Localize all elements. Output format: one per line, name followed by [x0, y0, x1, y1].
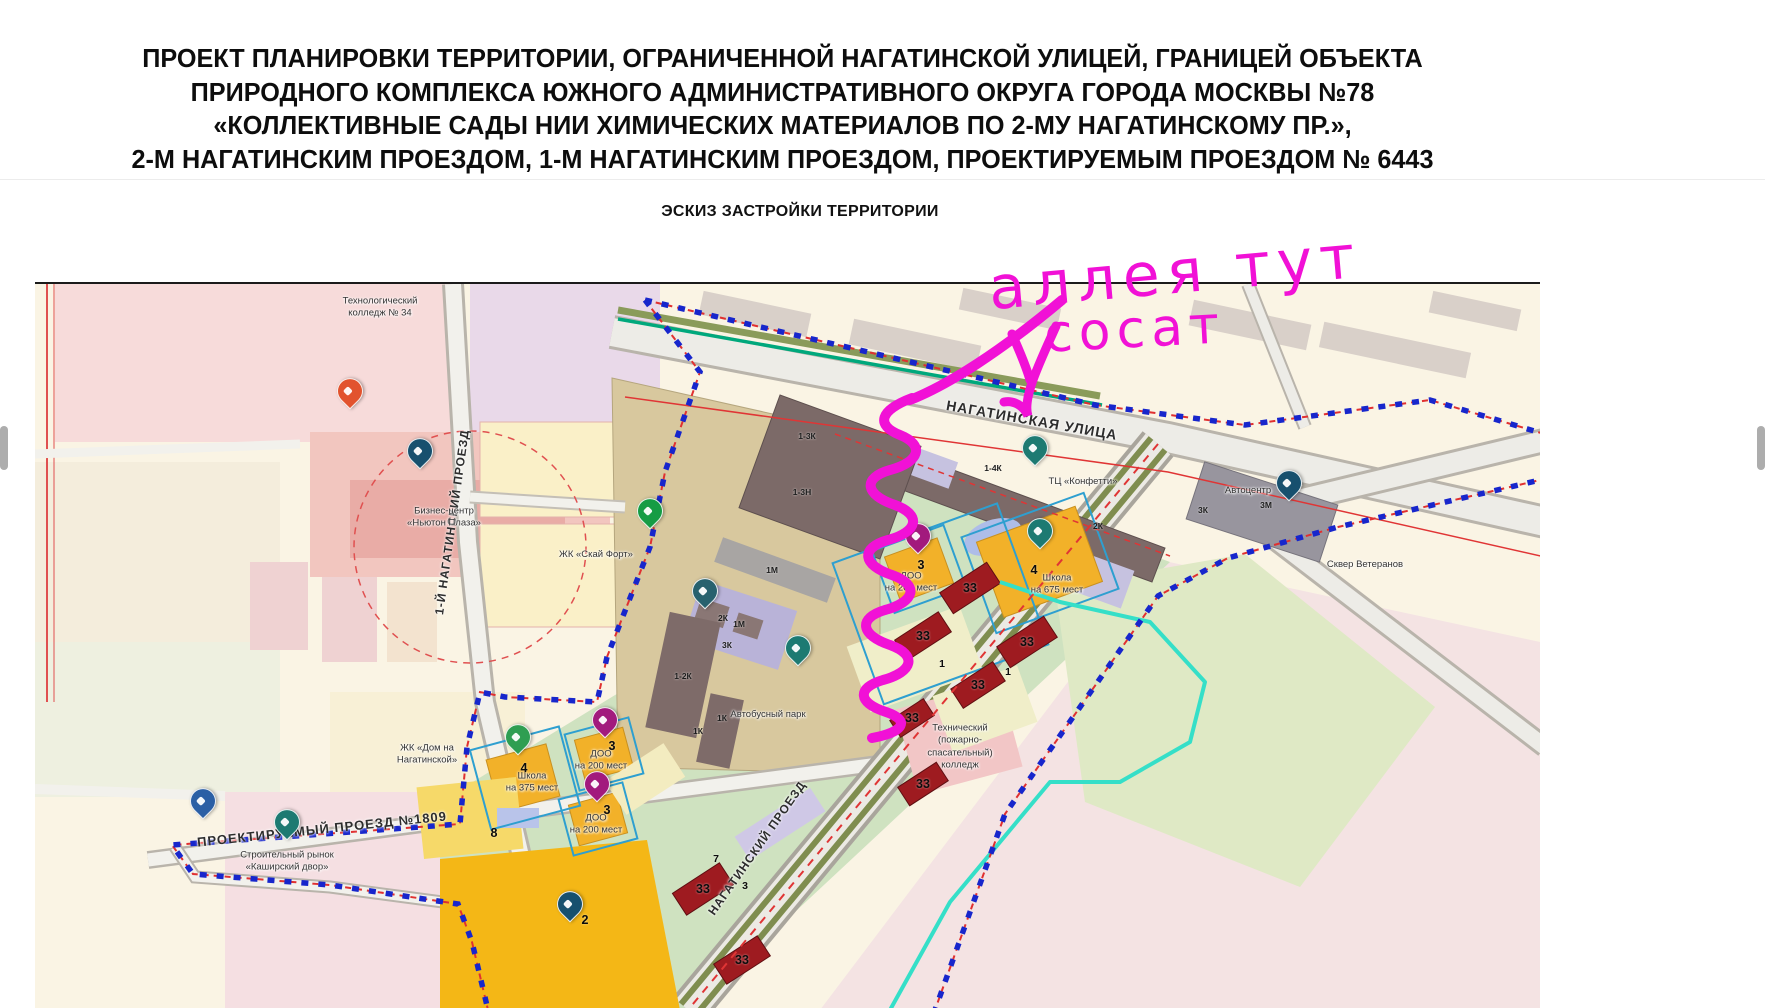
label-autocenter: Автоцентр	[1225, 485, 1271, 497]
page-title: ПРОЕКТ ПЛАНИРОВКИ ТЕРРИТОРИИ, ОГРАНИЧЕНН…	[23, 0, 1541, 176]
label-tech-college-34: Технологический колледж № 34	[343, 296, 418, 321]
code-label-1-4К: 1-4К	[984, 463, 1001, 473]
map-labels-layer: НАГАТИНСКАЯ УЛИЦА1-Й НАГАТИНСКИЙ ПРОЕЗДП…	[35, 284, 1540, 1008]
car-center-pin	[1271, 465, 1308, 502]
code-label-1-3К: 1-3К	[798, 431, 815, 441]
label-school-375: Школа на 375 мест	[506, 771, 559, 796]
right-scroll-pill[interactable]	[1757, 426, 1765, 470]
num-label-33: 33	[971, 678, 985, 692]
num-label-33: 33	[696, 882, 710, 896]
title-line-2: ПРИРОДНОГО КОМПЛЕКСА ЮЖНОГО АДМИНИСТРАТИ…	[23, 76, 1541, 110]
doo-a-pin	[587, 702, 624, 739]
code-label-1М: 1М	[733, 619, 745, 629]
header-divider	[0, 179, 1765, 180]
code-label-1К: 1К	[717, 713, 727, 723]
market-pin	[269, 804, 306, 841]
num-label-3: 3	[604, 803, 611, 817]
label-zhk-dom-na-nagatinskoy: ЖК «Дом на Нагатинской»	[397, 743, 457, 768]
label-tech-fire-college: Технический (пожарно- спасательный) колл…	[927, 722, 992, 771]
num-label-8: 8	[491, 826, 498, 840]
label-zhk-sky-fort: ЖК «Скай Форт»	[559, 549, 633, 561]
label-bus-park: Автобусный парк	[730, 709, 805, 721]
num-label sm-3: 3	[742, 880, 748, 892]
num-label sm-7: 7	[713, 853, 719, 865]
map-subtitle: ЭСКИЗ ЗАСТРОЙКИ ТЕРРИТОРИИ	[0, 203, 1600, 221]
title-line-4: 2-М НАГАТИНСКИМ ПРОЕЗДОМ, 1-М НАГАТИНСКИ…	[23, 143, 1541, 177]
code-label-1-3Н: 1-3Н	[793, 487, 811, 497]
label-business-center: Бизнес-центр «Ньютон Плаза»	[407, 506, 481, 531]
code-label-2К: 2К	[718, 613, 728, 623]
num-label-33: 33	[905, 711, 919, 725]
code-label-1М: 1М	[766, 565, 778, 575]
label-kashirsky-dvor: Строительный рынок «Каширский двор»	[240, 850, 334, 875]
transport-pin	[185, 783, 222, 820]
code-label-3М: 3М	[1260, 500, 1272, 510]
num-label sm-1: 1	[939, 658, 945, 670]
street-proektiruemy-proezd-1809: ПРОЕКТИРУЕМЫЙ ПРОЕЗД №1809	[196, 808, 447, 849]
school-375-pin	[500, 719, 537, 756]
num-label-33: 33	[916, 629, 930, 643]
planning-document-page: ПРОЕКТ ПЛАНИРОВКИ ТЕРРИТОРИИ, ОГРАНИЧЕНН…	[0, 0, 1765, 1008]
street-1st-nagatinsky-proezd: 1-Й НАГАТИНСКИЙ ПРОЕЗД	[432, 428, 472, 615]
num-label sm-1: 1	[1005, 666, 1011, 678]
school-675-pin	[1022, 513, 1059, 550]
code-label-1-2К: 1-2К	[674, 671, 691, 681]
num-label-4: 4	[521, 761, 528, 775]
num-label-33: 33	[963, 581, 977, 595]
label-doo-200-a: ДОО на 200 мест	[885, 571, 938, 596]
plot-2-pin	[552, 886, 589, 923]
num-label-33: 33	[1020, 635, 1034, 649]
label-school-675: Школа на 675 мест	[1031, 573, 1084, 598]
num-label-3: 3	[609, 739, 616, 753]
shopping-cart-pin	[1017, 430, 1054, 467]
label-doo-200-b: ДОО на 200 мест	[575, 749, 628, 774]
doo-b-pin	[579, 766, 616, 803]
num-label-33: 33	[735, 953, 749, 967]
title-line-3: «КОЛЛЕКТИВНЫЕ САДЫ НИИ ХИМИЧЕСКИХ МАТЕРИ…	[23, 109, 1541, 143]
street-nagatinsky-proezd: НАГАТИНСКИЙ ПРОЕЗД	[705, 778, 809, 918]
document-header: ПРОЕКТ ПЛАНИРОВКИ ТЕРРИТОРИИ, ОГРАНИЧЕНН…	[0, 0, 1565, 176]
code-label-2К: 2К	[1093, 521, 1103, 531]
title-line-1: ПРОЕКТ ПЛАНИРОВКИ ТЕРРИТОРИИ, ОГРАНИЧЕНН…	[23, 42, 1541, 76]
num-label-33: 33	[916, 777, 930, 791]
code-label-3К: 3К	[1198, 505, 1208, 515]
business-center-pin	[402, 433, 439, 470]
num-label-3: 3	[918, 558, 925, 572]
code-label-3К: 3К	[722, 640, 732, 650]
code-label-1К: 1К	[693, 726, 703, 736]
label-skver-veteranov: Сквер Ветеранов	[1327, 559, 1403, 571]
bus-park-pin	[780, 630, 817, 667]
num-label-4: 4	[1031, 563, 1038, 577]
num-label-2: 2	[582, 913, 589, 927]
pharmacy-pin	[632, 493, 669, 530]
college-logo-pin	[332, 373, 369, 410]
master-plan-map: НАГАТИНСКАЯ УЛИЦА1-Й НАГАТИНСКИЙ ПРОЕЗДП…	[35, 282, 1540, 1008]
label-tc-konfetti: ТЦ «Конфетти»	[1049, 476, 1118, 488]
label-doo-200-c: ДОО на 200 мест	[570, 813, 623, 838]
doo-children-pin	[900, 518, 937, 555]
left-scroll-pill[interactable]	[0, 426, 8, 470]
factory-pin	[687, 573, 724, 610]
